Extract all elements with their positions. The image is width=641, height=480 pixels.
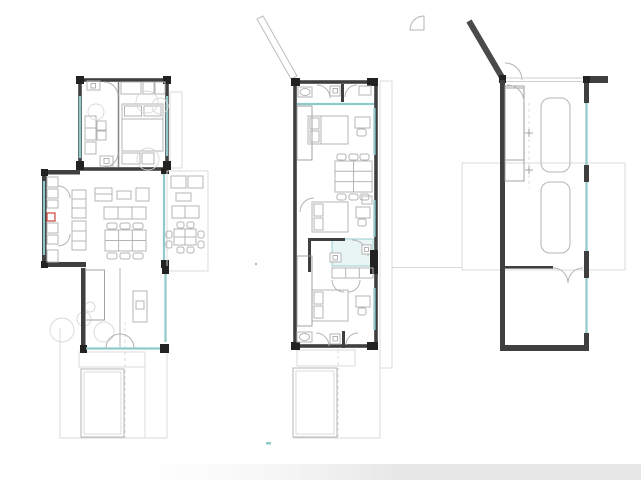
car-2 — [541, 182, 570, 253]
door-swing — [120, 334, 134, 348]
entry-door-swing — [505, 63, 522, 80]
lower-block — [80, 266, 169, 353]
island-counter — [133, 291, 147, 322]
stray-dot — [255, 263, 257, 265]
living-block — [41, 168, 208, 271]
bottom-wall — [500, 345, 589, 351]
drawing-sheet — [0, 0, 641, 480]
cyan-tick — [266, 442, 271, 445]
architectural-sheet — [0, 0, 641, 480]
stairs — [86, 270, 105, 320]
plan-entry-level — [462, 21, 625, 351]
staircase — [505, 85, 524, 181]
door-swing — [58, 186, 70, 198]
steps-hatch — [297, 350, 355, 366]
dining-table — [105, 223, 146, 259]
survey-marks — [525, 103, 533, 188]
terrace — [166, 171, 208, 271]
deck-hatch — [170, 92, 182, 168]
sofa-group — [95, 188, 149, 219]
steps-hatch — [79, 352, 145, 367]
middle-wall — [505, 266, 583, 283]
left-wall — [500, 80, 505, 350]
pool — [81, 369, 124, 437]
angled-entry-wall — [469, 21, 503, 79]
upper-floor-outline — [462, 163, 625, 270]
bedroom-block — [76, 76, 182, 170]
car-1 — [541, 98, 570, 172]
door-swing — [58, 234, 70, 246]
glazed-facade — [584, 83, 589, 347]
door-swing-glyph — [410, 16, 424, 30]
cooktop — [47, 213, 55, 221]
door-swing — [106, 334, 120, 348]
kitchen-counter — [47, 177, 86, 262]
pool — [293, 368, 337, 437]
plan-upper-level — [255, 16, 462, 445]
window-bottom-shadow — [0, 464, 641, 480]
plan-main-level — [41, 76, 208, 438]
ramp-wall — [257, 16, 297, 79]
terrain-lines — [60, 322, 167, 438]
deck-hatch — [380, 81, 392, 368]
